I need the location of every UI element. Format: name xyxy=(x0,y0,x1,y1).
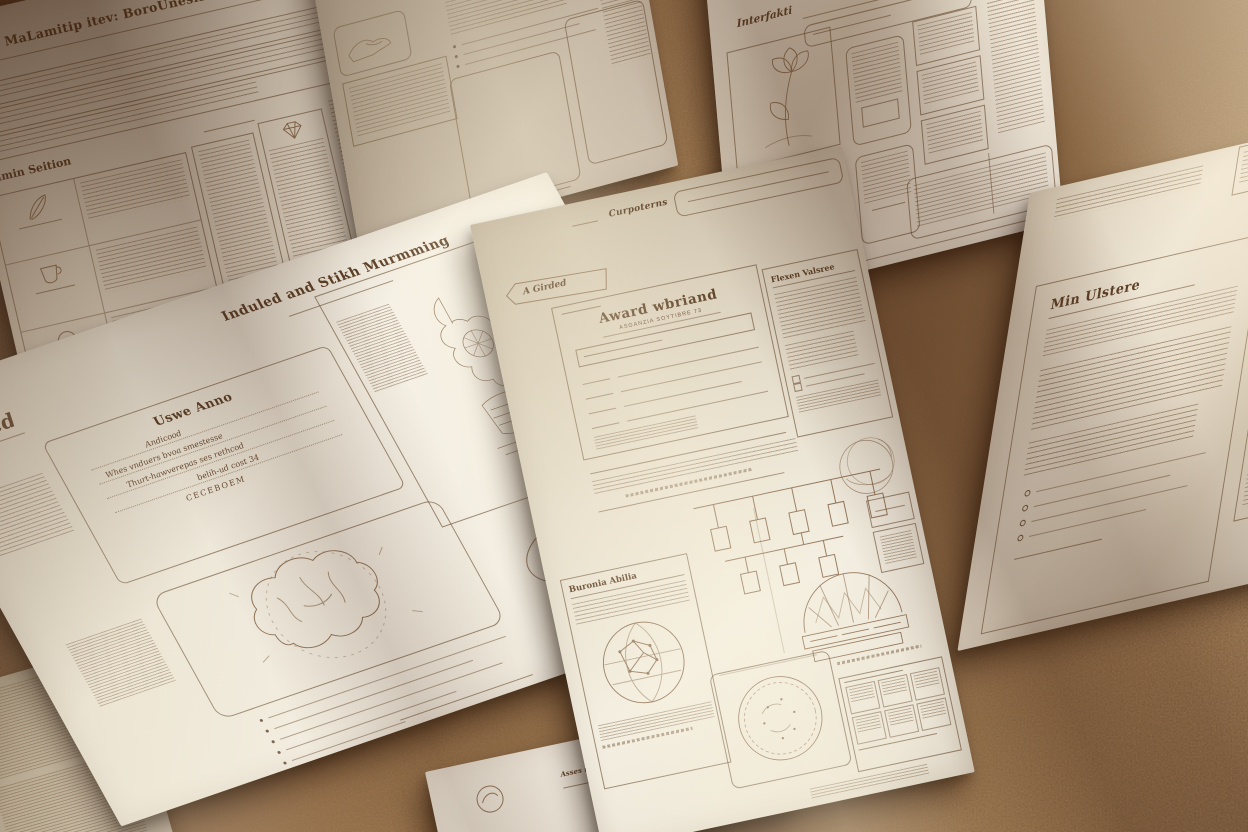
sheet-heading: Interfakti xyxy=(736,4,792,30)
flower-sketch xyxy=(730,31,837,166)
blank-frame-right xyxy=(564,0,669,165)
side-box xyxy=(873,523,925,573)
page-header: Curpoterns xyxy=(608,198,669,220)
phone-frame xyxy=(845,34,912,146)
gem-icon xyxy=(278,118,308,143)
globe-sketch xyxy=(587,606,701,720)
coin-sketch xyxy=(721,659,840,778)
coin-panel xyxy=(709,650,853,790)
partial-heading: dued xyxy=(0,408,20,447)
bird-sketch xyxy=(334,11,409,73)
mini-panel xyxy=(921,105,989,165)
mini-panel xyxy=(1233,401,1248,521)
cup-icon xyxy=(34,257,69,289)
main-text-panel: Min Ulstere xyxy=(981,233,1248,634)
logo-mark-sketch xyxy=(469,778,512,821)
caption-block xyxy=(0,473,75,560)
heading-underline xyxy=(0,432,25,452)
feather-icon xyxy=(18,190,54,224)
header-line xyxy=(572,220,598,226)
text-column xyxy=(985,0,1045,134)
column-label-line xyxy=(204,120,255,133)
dashboard-panel xyxy=(838,656,962,772)
corkboard-scene: MaLamitip itev: BoroUnesisung itei Vimin… xyxy=(0,0,1248,832)
caption-block xyxy=(66,618,176,706)
